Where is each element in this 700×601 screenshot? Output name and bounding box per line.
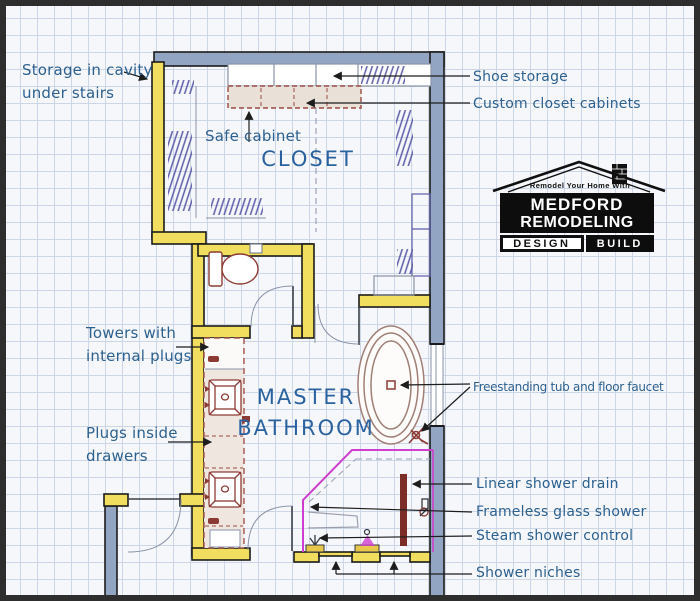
- label-linear-shower-drain: Linear shower drain: [476, 473, 619, 495]
- label-freestanding-tub: Freestanding tub and floor faucet: [473, 376, 663, 398]
- label-frameless-glass-shower: Frameless glass shower: [476, 501, 647, 523]
- label-storage-cavity: Storage in cavity under stairs: [22, 59, 153, 105]
- logo-name-line2: REMODELING: [520, 214, 633, 231]
- logo-build-badge: BUILD: [586, 235, 654, 252]
- leader-frameless-glass: [311, 507, 472, 512]
- floor-plan-canvas: Storage in cavity under stairs Safe cabi…: [0, 0, 700, 601]
- label-steam-shower-control: Steam shower control: [476, 525, 633, 547]
- room-label-closet: CLOSET: [254, 144, 362, 174]
- vanity-sink-2: [205, 472, 241, 507]
- label-towers-with-plugs: Towers with internal plugs: [86, 322, 192, 368]
- shower-bench: [308, 512, 358, 528]
- closet-shoe-cabinet: [374, 194, 430, 295]
- shower-valve: [420, 499, 428, 516]
- label-plugs-inside-drawers: Plugs inside drawers: [86, 422, 178, 468]
- internal-plug: [208, 518, 219, 524]
- logo-tagline: Remodel Your Home With: [506, 181, 654, 190]
- label-shoe-storage: Shoe storage: [473, 66, 568, 88]
- logo-name-line1: MEDFORD: [531, 195, 624, 214]
- logo-design-build-row: DESIGN BUILD: [500, 235, 654, 252]
- leader-floor-faucet: [422, 387, 470, 431]
- leader-steam-control: [320, 536, 472, 538]
- steam-control: [310, 535, 320, 545]
- room-label-master-bathroom: MASTER BATHROOM: [230, 382, 382, 444]
- logo-design-badge: DESIGN: [500, 235, 584, 252]
- label-shower-niches: Shower niches: [476, 562, 580, 584]
- label-custom-closet-cabinets: Custom closet cabinets: [473, 93, 641, 115]
- internal-plug: [208, 356, 219, 362]
- logo-name-box: MEDFORD REMODELING: [500, 193, 654, 233]
